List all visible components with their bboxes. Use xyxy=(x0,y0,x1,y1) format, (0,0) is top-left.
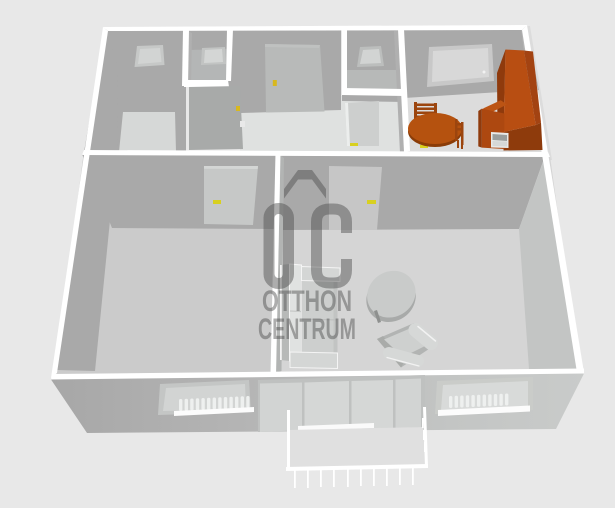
svg-text:CENTRUM: CENTRUM xyxy=(258,313,356,346)
